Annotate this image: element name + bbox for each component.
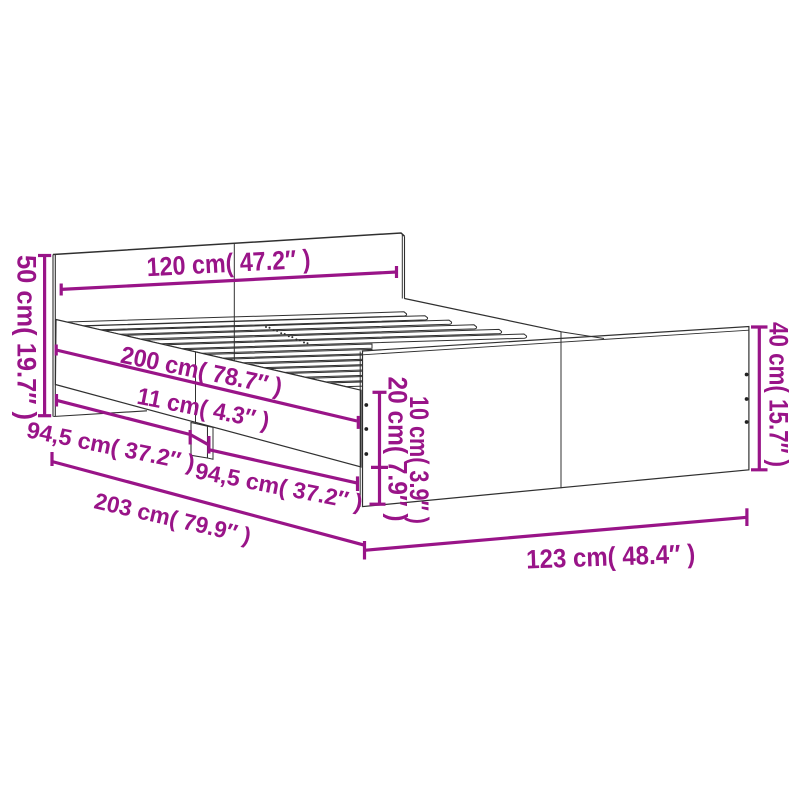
svg-text:10 cm( 3.9″ ): 10 cm( 3.9″ ) [404,396,434,524]
svg-text:203 cm( 79.9″ ): 203 cm( 79.9″ ) [92,488,254,549]
svg-text:123 cm( 48.4″ ): 123 cm( 48.4″ ) [526,539,696,575]
svg-text:50 cm( 19.7″ ): 50 cm( 19.7″ ) [12,255,42,420]
svg-text:94,5 cm( 37.2″ ): 94,5 cm( 37.2″ ) [25,416,198,476]
svg-text:40 cm( 15.7″ ): 40 cm( 15.7″ ) [764,322,794,467]
